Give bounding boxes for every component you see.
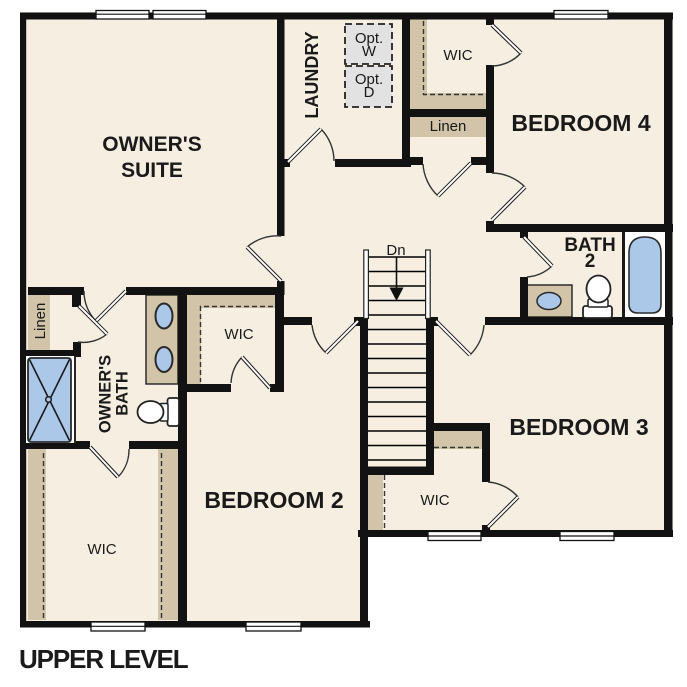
svg-text:WIC: WIC	[87, 541, 116, 558]
svg-text:OWNER'S: OWNER'S	[97, 355, 115, 433]
svg-text:W: W	[362, 43, 377, 60]
svg-text:BEDROOM 2: BEDROOM 2	[204, 487, 343, 513]
svg-text:WIC: WIC	[224, 326, 253, 343]
svg-text:Dn: Dn	[386, 242, 405, 259]
svg-text:WIC: WIC	[420, 492, 449, 509]
svg-text:Linen: Linen	[32, 303, 49, 340]
svg-text:D: D	[364, 84, 375, 101]
svg-text:LAUNDRY: LAUNDRY	[302, 31, 322, 118]
svg-text:OWNER'S: OWNER'S	[102, 133, 202, 156]
svg-text:UPPER LEVEL: UPPER LEVEL	[19, 644, 189, 674]
svg-text:BATH: BATH	[114, 371, 132, 416]
svg-text:SUITE: SUITE	[121, 159, 183, 182]
svg-text:WIC: WIC	[443, 47, 472, 64]
svg-text:BEDROOM 3: BEDROOM 3	[509, 414, 648, 440]
svg-text:Linen: Linen	[430, 118, 467, 135]
svg-text:BEDROOM 4: BEDROOM 4	[511, 110, 651, 136]
svg-text:2: 2	[585, 251, 596, 272]
